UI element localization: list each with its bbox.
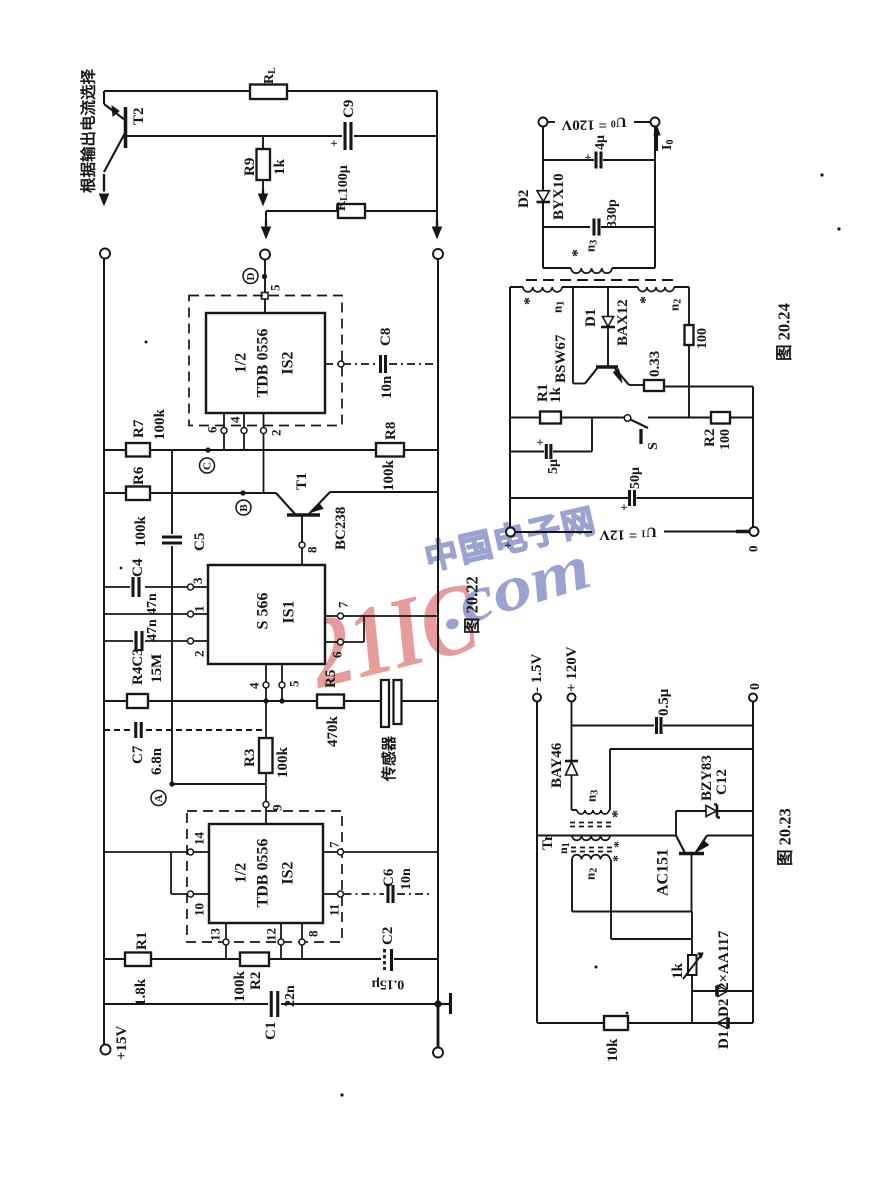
svg-text:C12: C12	[714, 769, 730, 795]
svg-text:S 566: S 566	[254, 593, 271, 630]
svg-text:图 20.22: 图 20.22	[463, 576, 482, 634]
svg-text:IS2: IS2	[279, 351, 296, 374]
svg-text:2×AA117: 2×AA117	[716, 930, 732, 990]
svg-text:Tr: Tr	[540, 834, 556, 850]
svg-text:+ 120V: + 120V	[564, 646, 580, 692]
svg-text:8: 8	[304, 546, 319, 553]
svg-text:100: 100	[718, 429, 733, 450]
svg-text:BYX10: BYX10	[551, 173, 567, 220]
svg-text:- 1.5V: - 1.5V	[529, 654, 545, 692]
svg-text:R2: R2	[702, 429, 718, 447]
svg-text:*: *	[521, 297, 538, 305]
svg-text:330p: 330p	[605, 199, 620, 228]
svg-text:*: *	[637, 296, 654, 304]
svg-text:BC238: BC238	[333, 507, 349, 550]
svg-text:100k: 100k	[275, 747, 291, 779]
svg-text:6.8n: 6.8n	[149, 747, 165, 775]
svg-text:0.5μ: 0.5μ	[656, 688, 672, 716]
svg-text:AC151: AC151	[654, 849, 671, 896]
svg-text:*: *	[611, 855, 626, 862]
svg-text:0: 0	[748, 683, 763, 690]
svg-text:*: *	[612, 841, 627, 848]
svg-text:RL100μ: RL100μ	[334, 165, 351, 211]
svg-text:BAY46: BAY46	[549, 742, 565, 788]
svg-text:0.33: 0.33	[647, 351, 663, 377]
svg-text:100k: 100k	[381, 460, 397, 492]
svg-text:C1: C1	[263, 1022, 279, 1040]
svg-text:*: *	[609, 810, 626, 818]
svg-text:470k: 470k	[325, 716, 341, 748]
svg-text:50μ: 50μ	[628, 467, 643, 489]
svg-text:+: +	[616, 504, 631, 511]
svg-text:R6: R6	[131, 466, 147, 485]
svg-text:1k: 1k	[272, 159, 288, 176]
svg-text:D2: D2	[716, 999, 732, 1017]
svg-text:0.15μ: 0.15μ	[372, 977, 405, 992]
svg-text:C4: C4	[130, 558, 146, 577]
svg-text:传感器: 传感器	[380, 735, 398, 782]
svg-text:R8: R8	[383, 422, 399, 440]
svg-text:D1: D1	[583, 309, 599, 327]
svg-text:47n: 47n	[145, 619, 160, 641]
svg-text:10: 10	[191, 903, 206, 916]
svg-text:D1: D1	[716, 1031, 732, 1049]
svg-text:R7: R7	[131, 419, 147, 438]
svg-text:图 20.24: 图 20.24	[775, 303, 794, 361]
svg-text:1k: 1k	[670, 963, 686, 980]
svg-text:B: B	[238, 504, 250, 512]
svg-text:1/2: 1/2	[232, 353, 249, 373]
svg-text:C5: C5	[192, 533, 208, 551]
svg-text:13: 13	[207, 928, 222, 942]
svg-text:T1: T1	[294, 472, 310, 490]
svg-text:IS2: IS2	[279, 861, 296, 884]
svg-text:+: +	[580, 154, 595, 161]
svg-text:+15V: +15V	[114, 1025, 130, 1060]
svg-text:4μ: 4μ	[593, 135, 608, 150]
svg-text:47n: 47n	[145, 593, 160, 615]
svg-text:1: 1	[191, 606, 206, 613]
svg-text:R4C3: R4C3	[130, 648, 146, 685]
svg-text:1.8k: 1.8k	[133, 978, 149, 1006]
svg-text:C: C	[202, 462, 214, 470]
svg-text:12: 12	[263, 928, 278, 941]
svg-text:1k: 1k	[548, 387, 564, 404]
svg-text:IS1: IS1	[280, 600, 297, 623]
svg-text:10k: 10k	[605, 1038, 621, 1062]
svg-text:5: 5	[267, 284, 282, 291]
svg-text:S: S	[646, 442, 661, 450]
svg-text:4: 4	[246, 682, 261, 689]
svg-text:TDB 0556: TDB 0556	[254, 329, 271, 398]
svg-text:C6: C6	[381, 868, 397, 887]
svg-text:2: 2	[268, 430, 283, 437]
svg-text:8: 8	[305, 930, 320, 937]
svg-text:C8: C8	[378, 328, 394, 346]
svg-text:7: 7	[326, 841, 341, 848]
svg-text:*: *	[569, 249, 586, 257]
svg-text:R9: R9	[242, 158, 258, 176]
svg-text:C7: C7	[130, 745, 146, 764]
svg-text:R1: R1	[134, 932, 150, 950]
svg-text:TDB 0556: TDB 0556	[254, 839, 271, 908]
svg-text:100: 100	[695, 328, 710, 349]
svg-text:R5: R5	[323, 670, 339, 688]
svg-text:D: D	[245, 272, 257, 280]
svg-text:15M: 15M	[149, 654, 165, 683]
svg-text:T2: T2	[131, 107, 147, 125]
svg-text:9: 9	[269, 804, 284, 811]
svg-text:BAX12: BAX12	[615, 299, 631, 346]
svg-text:BZY83: BZY83	[699, 755, 715, 801]
svg-text:6: 6	[329, 651, 344, 658]
svg-text:6: 6	[204, 426, 219, 433]
svg-text:11: 11	[326, 904, 341, 916]
svg-text:5: 5	[286, 680, 301, 687]
svg-text:10n: 10n	[379, 375, 395, 399]
svg-text:+: +	[326, 140, 341, 147]
svg-text:C9: C9	[341, 100, 357, 118]
svg-text:A: A	[153, 794, 165, 802]
svg-text:+: +	[500, 542, 515, 549]
svg-text:根据输出电流选择: 根据输出电流选择	[78, 68, 97, 193]
svg-text:1/2: 1/2	[232, 863, 249, 883]
svg-text:R3: R3	[242, 749, 258, 767]
svg-text:14: 14	[191, 832, 206, 846]
svg-text:7: 7	[335, 601, 350, 608]
svg-text:0: 0	[745, 546, 760, 553]
svg-text:BSW67: BSW67	[553, 334, 569, 383]
svg-text:+: +	[532, 439, 547, 446]
svg-text:100k: 100k	[152, 409, 168, 441]
svg-text:2: 2	[191, 651, 206, 658]
svg-text:3: 3	[190, 577, 205, 584]
svg-text:D2: D2	[516, 190, 532, 208]
svg-text:100k: 100k	[232, 971, 248, 1003]
svg-text:C2: C2	[380, 927, 396, 945]
svg-text:10n: 10n	[399, 868, 414, 890]
svg-text:100k: 100k	[133, 516, 149, 548]
svg-text:图 20.23: 图 20.23	[776, 808, 795, 866]
svg-text:4: 4	[227, 416, 242, 423]
svg-text:5μ: 5μ	[546, 459, 561, 474]
svg-text:22n: 22n	[283, 985, 298, 1007]
svg-text:R2: R2	[248, 972, 264, 990]
